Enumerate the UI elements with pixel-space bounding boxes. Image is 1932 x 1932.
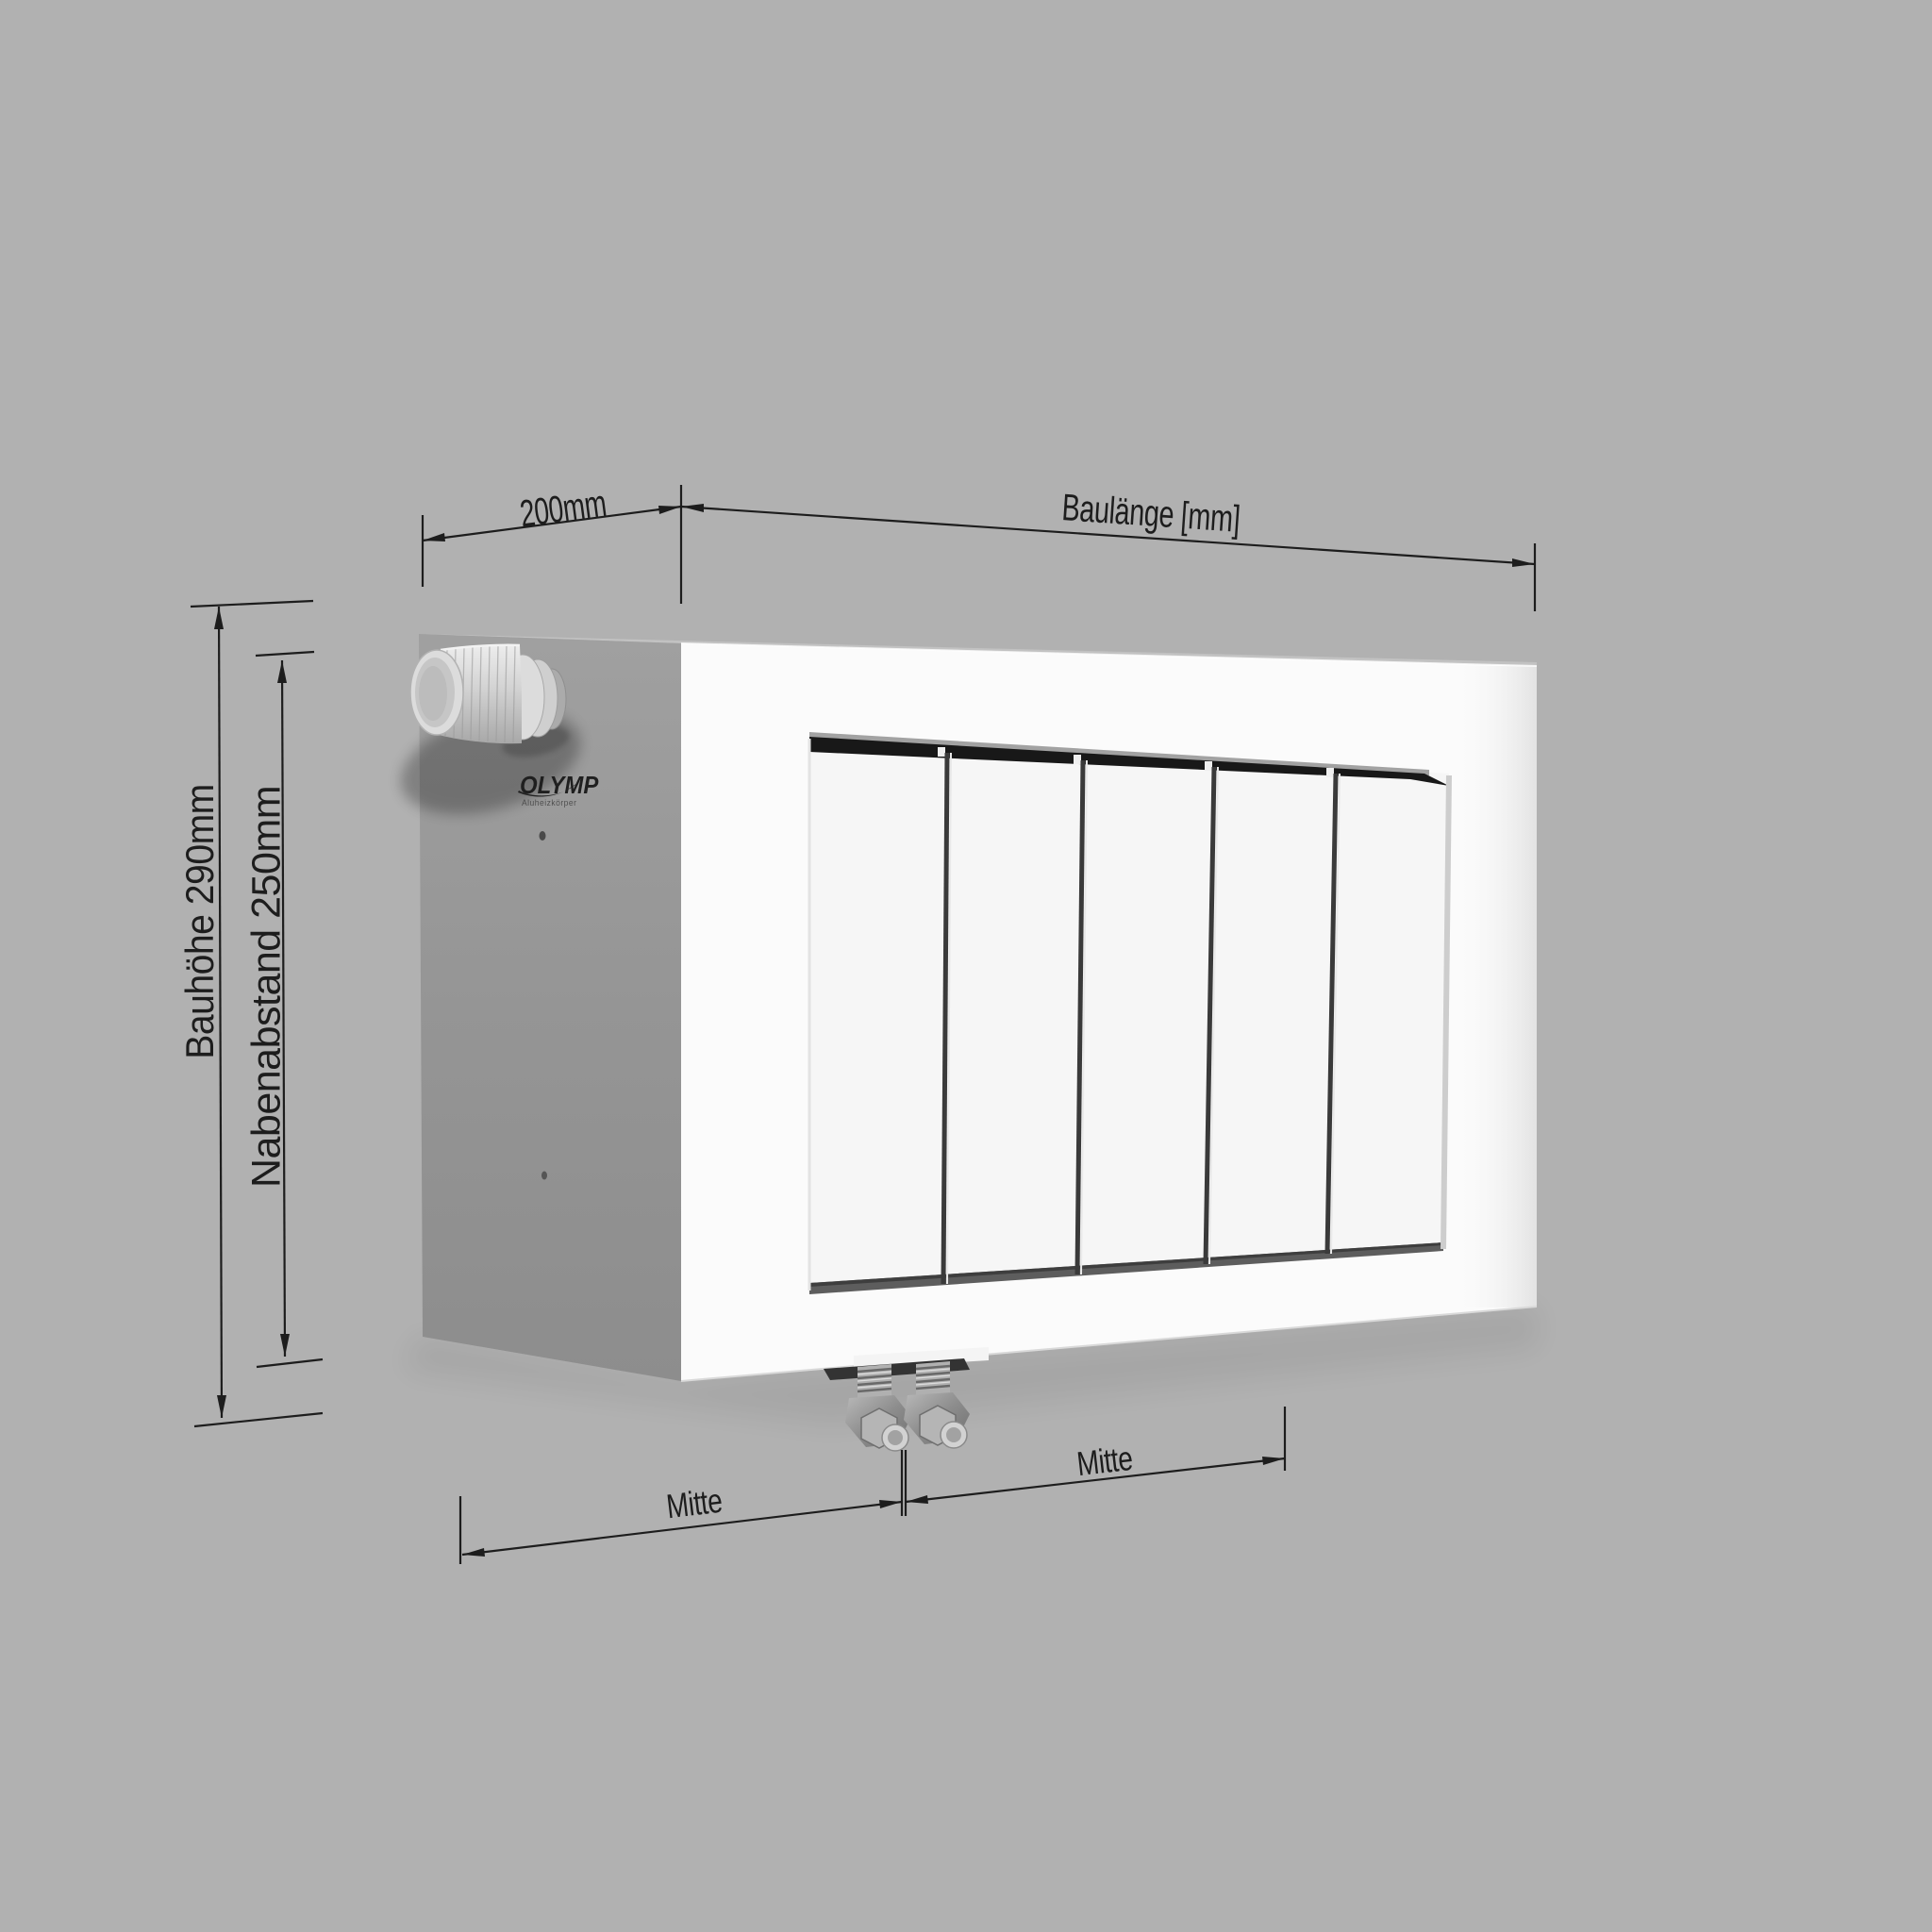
front-right-shading bbox=[1453, 666, 1537, 1307]
dimension-label-center-left: Mitte bbox=[664, 1481, 724, 1527]
dimension-label-center-right: Mitte bbox=[1074, 1439, 1134, 1484]
vent-plug-top bbox=[540, 831, 546, 841]
brand-tagline: Aluheizkörper bbox=[522, 798, 576, 808]
brand-logo: OLYMP bbox=[520, 771, 598, 800]
dimension-label-hub-distance: Nabenabstand 250mm bbox=[244, 786, 291, 1188]
fin-area bbox=[809, 732, 1452, 1294]
dimension-label-height: Bauhöhe 290mm bbox=[177, 784, 223, 1058]
vent-plug-bottom bbox=[541, 1172, 547, 1180]
technical-drawing: 200mm Baulänge [mm] Bauhöhe 290mm Nabena… bbox=[0, 0, 1932, 1932]
